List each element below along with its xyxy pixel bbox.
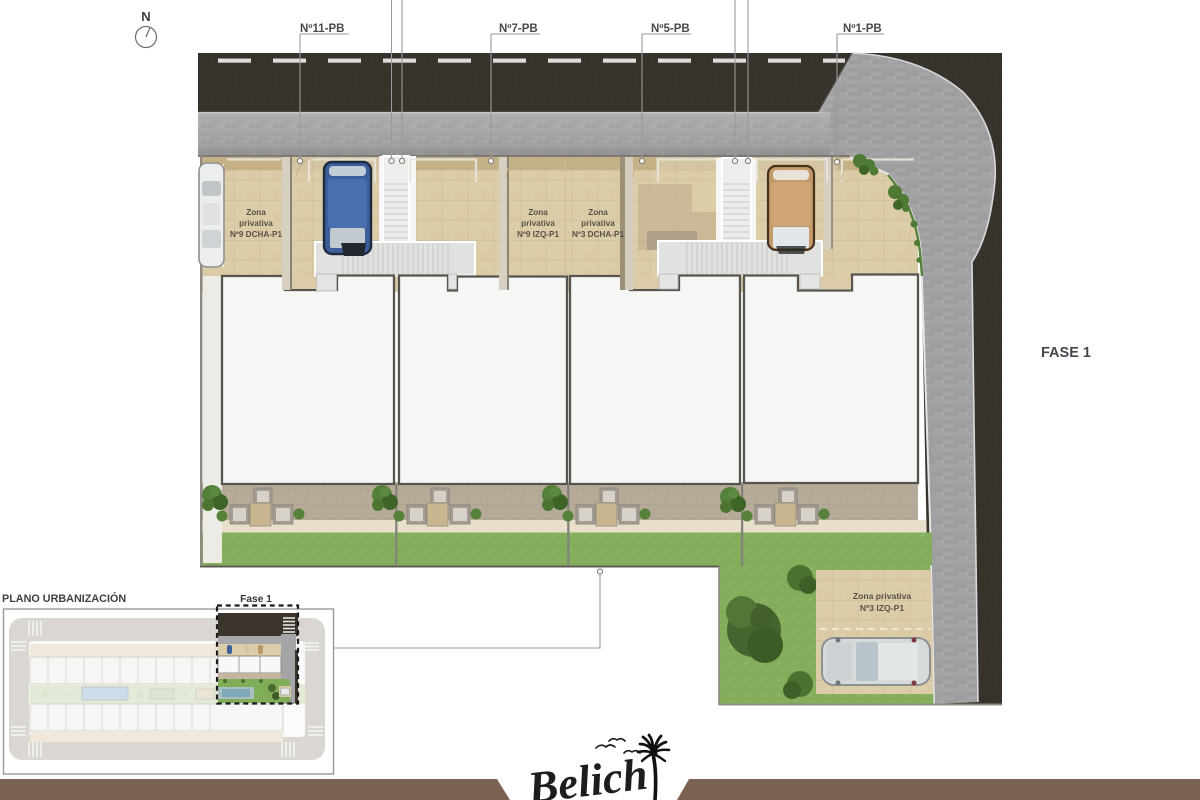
svg-text:Nº1-PB: Nº1-PB <box>843 23 882 35</box>
svg-text:Zona privativa: Zona privativa <box>853 591 911 601</box>
svg-text:FASE 1: FASE 1 <box>1041 345 1091 361</box>
svg-text:Nº7-PB: Nº7-PB <box>499 23 538 35</box>
svg-text:Fase 1: Fase 1 <box>240 594 272 605</box>
svg-text:Nº9 DCHA-P1: Nº9 DCHA-P1 <box>230 230 283 239</box>
svg-text:Zona: Zona <box>528 208 548 217</box>
svg-text:PLANO URBANIZACIÓN: PLANO URBANIZACIÓN <box>2 592 126 605</box>
svg-text:privativa: privativa <box>581 219 615 228</box>
svg-text:Zona: Zona <box>246 208 266 217</box>
svg-text:Nº3 IZQ-P1: Nº3 IZQ-P1 <box>860 603 904 613</box>
svg-text:Zona: Zona <box>588 208 608 217</box>
svg-text:privativa: privativa <box>239 219 273 228</box>
svg-text:Nº3 DCHA-P1: Nº3 DCHA-P1 <box>572 230 625 239</box>
svg-text:N: N <box>141 9 150 24</box>
svg-text:Nº11-PB: Nº11-PB <box>300 23 344 35</box>
svg-text:Nº5-PB: Nº5-PB <box>651 23 690 35</box>
svg-text:Nº9 IZQ-P1: Nº9 IZQ-P1 <box>517 230 560 239</box>
svg-text:privativa: privativa <box>521 219 555 228</box>
